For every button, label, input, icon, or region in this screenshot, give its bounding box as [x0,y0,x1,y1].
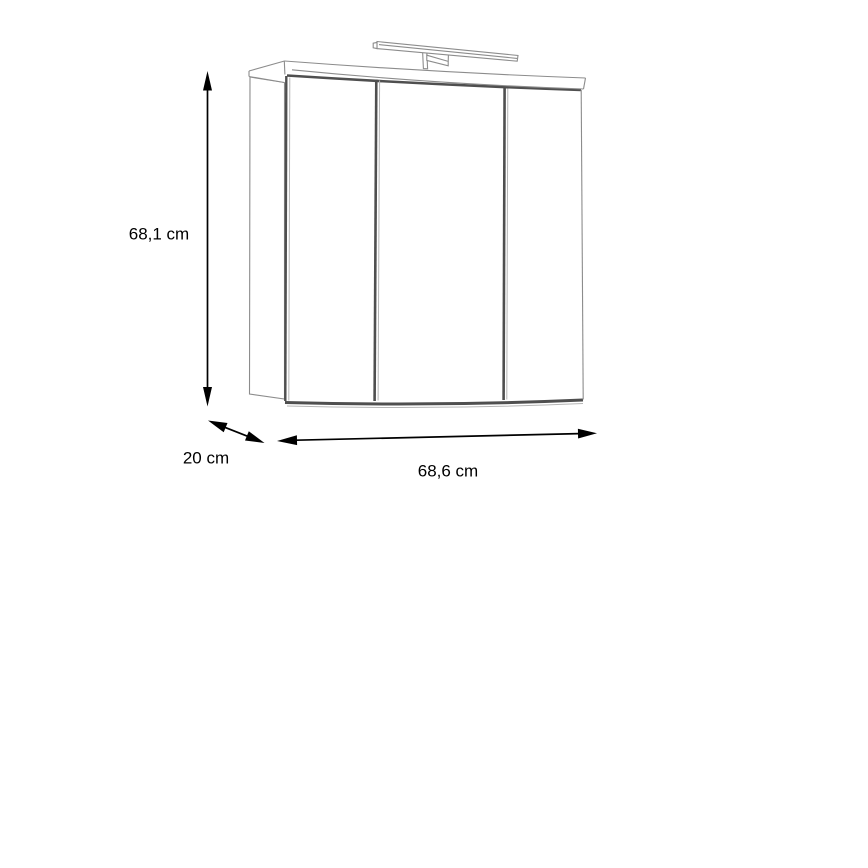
depth-arrowhead-downright [245,431,265,443]
cabinet-left-side-panel [250,77,285,399]
depth-arrowhead-upleft [208,421,228,433]
width-dimension-label: 68,6 cm [418,462,478,481]
height-dimension: 68,1 cm [129,71,212,407]
width-dimension: 68,6 cm [277,429,597,481]
depth-dimension-label: 20 cm [183,449,229,468]
height-arrowhead-down [203,387,212,407]
width-dimension-line [296,434,579,441]
dimension-diagram-page: 68,1 cm 20 cm 68,6 cm [0,0,868,868]
left-door-left-edge [285,76,286,401]
mirror-doors-face [285,76,583,403]
cabinet [249,42,586,408]
width-arrowhead-right [578,429,597,439]
light-bar-left-cap [373,42,377,48]
height-arrowhead-up [203,71,212,91]
light-mount-arm [427,55,448,66]
depth-dimension-line [225,427,249,436]
cabinet-dimension-drawing: 68,1 cm 20 cm 68,6 cm [0,0,868,868]
width-arrowhead-left [277,435,297,445]
top-panel-front-left-corner [284,61,285,75]
height-dimension-label: 68,1 cm [129,225,189,244]
light-fixture [373,42,518,69]
door-gap-line-2 [504,88,505,401]
depth-dimension: 20 cm [183,421,265,468]
door-gap-line-1 [375,80,377,402]
